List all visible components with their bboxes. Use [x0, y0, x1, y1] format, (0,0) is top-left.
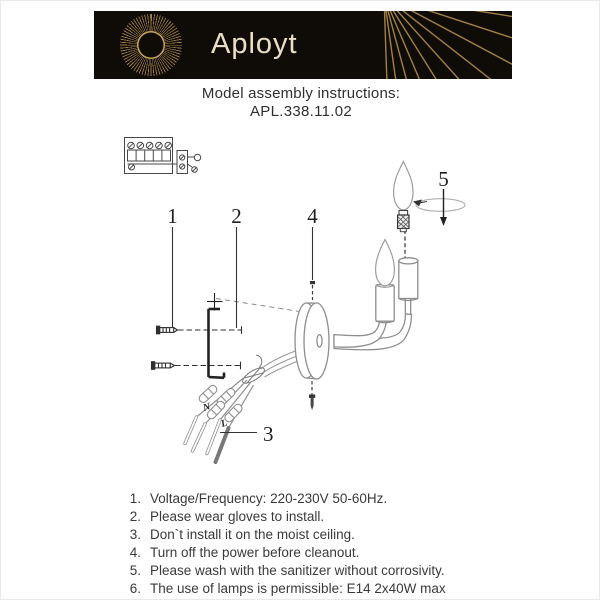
item-text: Turn off the power before cleanout.: [150, 544, 359, 562]
instruction-item: 4. Turn off the power before cleanout.: [124, 544, 446, 562]
instruction-item: 2. Please wear gloves to install.: [124, 508, 446, 526]
callout-1: 1: [167, 204, 178, 328]
detached-bulb: [394, 162, 413, 232]
item-text: Please wear gloves to install.: [150, 508, 324, 526]
wall-anchor-screw-bottom: [152, 362, 241, 370]
wire-connectors: N L: [185, 378, 254, 462]
item-number: 5.: [124, 562, 141, 580]
lamp-socket-right: [399, 258, 418, 315]
svg-text:5: 5: [438, 167, 449, 191]
instruction-list: 1. Voltage/Frequency: 220-230V 50-60Hz. …: [124, 490, 446, 598]
rotation-arrow: [413, 199, 465, 212]
candle-bulb-left: [376, 240, 395, 288]
lamp-socket-left: [376, 285, 394, 323]
svg-text:3: 3: [263, 422, 274, 446]
svg-text:1: 1: [167, 204, 178, 228]
instruction-item: 1. Voltage/Frequency: 220-230V 50-60Hz.: [124, 490, 446, 508]
canopy-screw-bottom: [309, 381, 315, 410]
instruction-sheet: { "header": { "brand": "Aployt", "colors…: [0, 0, 600, 600]
wire-twist: [240, 355, 266, 386]
item-text: Voltage/Frequency: 220-230V 50-60Hz.: [150, 490, 387, 508]
item-number: 4.: [124, 544, 141, 562]
svg-text:2: 2: [231, 204, 242, 228]
wall-anchor-screw-top: [157, 326, 242, 334]
wiring-terminal-diagram: [125, 138, 201, 174]
callout-4: 4: [307, 204, 318, 280]
item-text: The use of lamps is permissible: E14 2x4…: [150, 580, 446, 598]
callout-2: 2: [231, 204, 242, 328]
item-number: 3.: [124, 526, 141, 544]
instruction-item: 3. Don`t install it on the moist ceiling…: [124, 526, 446, 544]
callout-5: 5: [438, 167, 449, 226]
bulb-base-e14: [398, 211, 409, 232]
alignment-dashed-line: [216, 299, 303, 313]
instruction-item: 5. Please wash with the sanitizer withou…: [124, 562, 446, 580]
item-number: 2.: [124, 508, 141, 526]
item-text: Please wash with the sanitizer without c…: [150, 562, 445, 580]
wire-bundle: [261, 350, 300, 377]
instruction-item: 6. The use of lamps is permissible: E14 …: [124, 580, 446, 598]
item-number: 6.: [124, 580, 141, 598]
canopy-screw-top: [310, 281, 315, 300]
canopy: [295, 303, 329, 379]
item-text: Don`t install it on the moist ceiling.: [150, 526, 355, 544]
item-number: 1.: [124, 490, 141, 508]
svg-text:4: 4: [307, 204, 318, 228]
